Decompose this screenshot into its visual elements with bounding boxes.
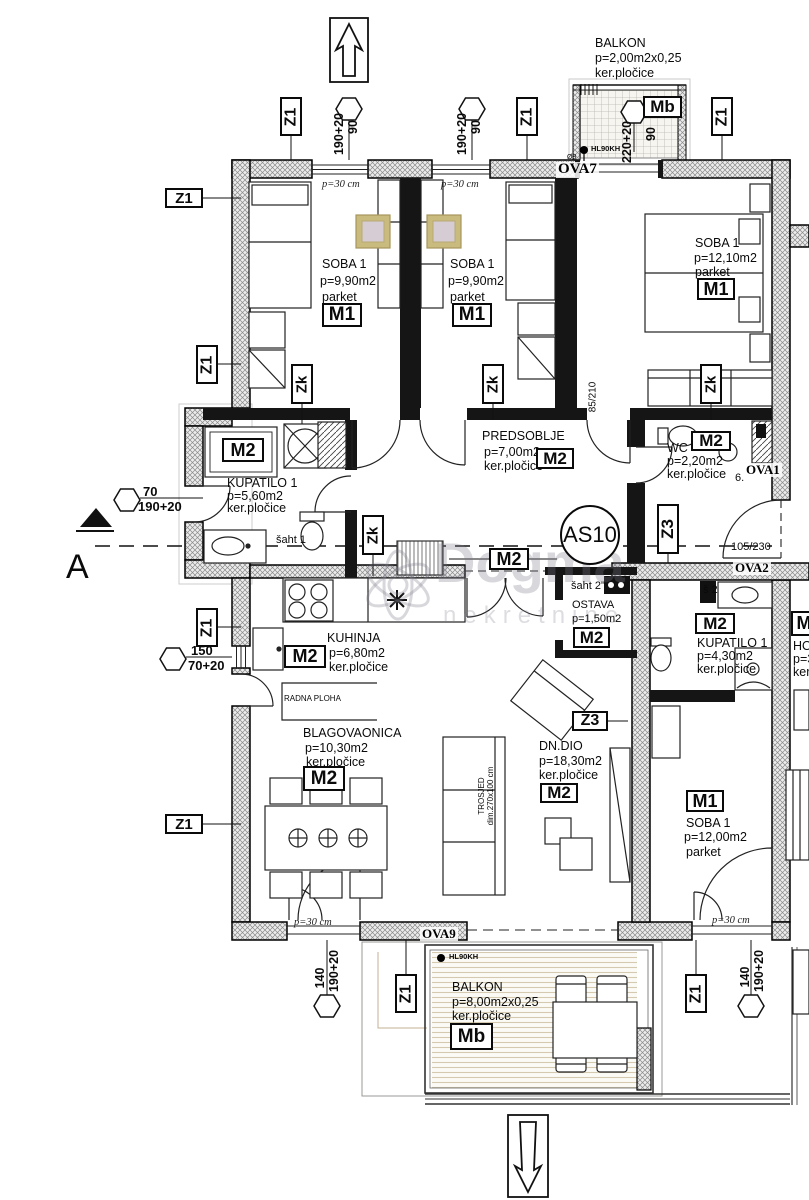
material-box-m2: M2: [536, 448, 574, 469]
wall-marker-z1: Z1: [196, 608, 218, 647]
room-area: p=8,00m2x0,25: [452, 995, 539, 1009]
room-floor: ker.pločice: [667, 467, 726, 481]
dim-text: 70: [143, 484, 157, 499]
material-box-m2: M2: [540, 783, 578, 803]
dim-text: 140: [313, 968, 327, 989]
wall-marker-z1: Z1: [516, 97, 538, 136]
unit-label: AS10: [560, 505, 620, 565]
dim-text: 90: [346, 120, 360, 134]
shaft-label: šaht 2": [571, 580, 605, 593]
room-area: p=18,30m2: [539, 754, 602, 768]
side-table: [560, 838, 592, 870]
room-area: p=12,00m2: [684, 830, 747, 844]
chair: [270, 778, 302, 804]
wall-marker-zk: Zk: [482, 364, 504, 404]
material-box-m1: M1: [686, 790, 724, 812]
wall-marker-zk: Zk: [362, 515, 384, 555]
room-name: BALKON: [452, 980, 503, 994]
wall-marker-z1: Z1: [395, 974, 417, 1013]
room-name: SOBA 1: [686, 816, 730, 830]
chair: [350, 778, 382, 804]
room-floor: ker.pločice: [697, 662, 756, 676]
material-box-m1: M1: [452, 303, 492, 327]
material-box-m1: M1: [322, 303, 362, 327]
material-box-m1: M1: [697, 278, 735, 300]
hl90kh-dot-icon: [437, 954, 445, 962]
toilet-tank-icon: [300, 512, 324, 521]
room-floor: parket: [686, 845, 721, 859]
parapet-label: p=30 cm: [712, 915, 750, 927]
wall-marker-z1: Z1: [711, 97, 733, 136]
material-box-m2: M2: [489, 548, 529, 570]
shaft: [318, 422, 346, 468]
section-marker-icon: [80, 508, 112, 527]
room-floor: ker.pločice: [329, 660, 388, 674]
room-area: p=7,00m2: [484, 445, 540, 459]
chair: [350, 872, 382, 898]
wall-marker-z1: Z1: [280, 97, 302, 136]
dim-text: 190+20: [332, 113, 346, 155]
opening-label: OVA2: [733, 561, 771, 575]
wall-marker-zk: Zk: [700, 364, 722, 404]
closet-clipped: [786, 770, 809, 860]
opening-label: OVA9: [420, 927, 458, 941]
dim-text: 90: [644, 127, 658, 141]
room-area: p=9,90m2: [448, 274, 504, 288]
room-area: p=12,10m2: [694, 251, 757, 265]
room-floor: ker.pločice: [539, 768, 598, 782]
chair: [310, 872, 342, 898]
chair: [270, 872, 302, 898]
room-area: p=2,00m2x0,25: [595, 51, 682, 65]
room-name: BLAGOVAONICA: [303, 726, 401, 740]
room-name: PREDSOBLJE: [482, 429, 565, 443]
dining-set: [265, 778, 387, 898]
hexagon-marker: [738, 995, 764, 1017]
material-box-mb: Mb: [643, 96, 682, 118]
floorplan-drawing: [0, 0, 809, 1200]
dim-text: 220+20: [620, 121, 634, 163]
hexagon-marker: [314, 995, 340, 1017]
room-name: BALKON: [595, 36, 646, 50]
material-box-clipped: M: [791, 611, 809, 636]
pillow: [252, 185, 308, 205]
room-name: SOBA 1: [322, 257, 366, 271]
dim-text: 190+20: [327, 950, 341, 992]
material-box-m2: M2: [573, 627, 610, 648]
north-arrow-icon: [336, 24, 362, 76]
hexagon-marker: [160, 648, 186, 670]
sofa: [443, 737, 505, 895]
living-area: [443, 660, 630, 895]
nightstand: [750, 334, 770, 362]
wall-marker-z3: Z3: [572, 711, 608, 731]
nightstand: [249, 312, 285, 348]
room-area: p=6,80m2: [329, 646, 385, 660]
room-area: p=9,90m2: [320, 274, 376, 288]
dim-text: 190+20: [752, 950, 766, 992]
door-code: HL90KH: [591, 145, 620, 154]
room-floor: ker.pločice: [452, 1009, 511, 1023]
nightstand: [750, 184, 770, 212]
dim-text: 85/210: [588, 382, 599, 413]
wall-marker-z1: Z1: [165, 188, 203, 208]
material-box-m2: M2: [284, 645, 326, 668]
dim-text: 140: [738, 967, 752, 988]
material-box-m2: M2: [695, 613, 735, 634]
radiator: [397, 541, 443, 575]
down-arrow-box: [508, 1115, 548, 1197]
wardrobe: [652, 706, 680, 758]
material-box-m2: M2: [222, 438, 264, 462]
wall-marker-z3: Z3: [657, 504, 679, 554]
wall-marker-z1: Z1: [685, 974, 707, 1013]
section-letter: A: [66, 548, 89, 587]
neighbor-room-floor: ker: [793, 665, 809, 679]
pillow: [739, 219, 760, 244]
door-dimension: 105/230: [731, 541, 771, 554]
room-area: p=1,50m2: [572, 613, 621, 626]
toilet-icon: [651, 645, 671, 671]
sink-icon: [212, 537, 244, 555]
room-name: KUHINJA: [327, 631, 380, 645]
room-floor: ker.pločice: [595, 66, 654, 80]
shaft-label: šaht 1: [276, 534, 306, 547]
room-name: SOBA 1: [695, 236, 739, 250]
dim-text: 190+20: [138, 499, 182, 514]
neighbor-furniture: [793, 950, 809, 1014]
neighbor-fixture: [794, 690, 809, 730]
room-area: p=10,30m2: [305, 741, 368, 755]
parapet-label: p=30 cm: [322, 179, 360, 191]
room-name: SOBA 1: [450, 257, 494, 271]
shaft-label: š 2: [703, 584, 718, 597]
nightstand: [518, 303, 555, 335]
opening-label: OVA1: [744, 463, 782, 477]
floorplan-page: Dogma nekretnine SOBA 1 p=9,90m2 parket …: [0, 0, 809, 1200]
sink-icon: [732, 587, 758, 603]
down-arrow-icon: [515, 1122, 541, 1192]
door-code: HL90KH: [449, 953, 478, 962]
dim-text: 90: [469, 120, 483, 134]
room-name: DN.DIO: [539, 739, 583, 753]
material-box-m2: M2: [303, 766, 345, 791]
room-floor: ker.pločice: [484, 459, 543, 473]
opening-number: 6.: [735, 472, 744, 485]
worktop-label: RADNA PLOHA: [284, 694, 341, 703]
room-name: OSTAVA: [572, 599, 614, 612]
hexagon-marker: [114, 489, 140, 511]
parapet-label: p=30 cm: [294, 917, 332, 929]
pillow: [509, 185, 552, 203]
material-box-mb: Mb: [450, 1023, 493, 1050]
wall-marker-z1: Z1: [196, 345, 218, 384]
dim-text: 190+20: [455, 113, 469, 155]
room-floor: ker.pločice: [227, 501, 286, 515]
parapet-label: p=30 cm: [441, 179, 479, 191]
material-box-m2: M2: [691, 431, 731, 451]
opening-label: OVA7: [556, 162, 599, 178]
dim-text: 70+20: [188, 658, 225, 673]
pillow: [739, 297, 760, 322]
wall-marker-zk: Zk: [291, 364, 313, 404]
ostava-fixtures: [604, 576, 630, 594]
wall-marker-z1: Z1: [165, 814, 203, 834]
sofa-label: TROSJED dim.270x100 cm: [477, 767, 495, 826]
